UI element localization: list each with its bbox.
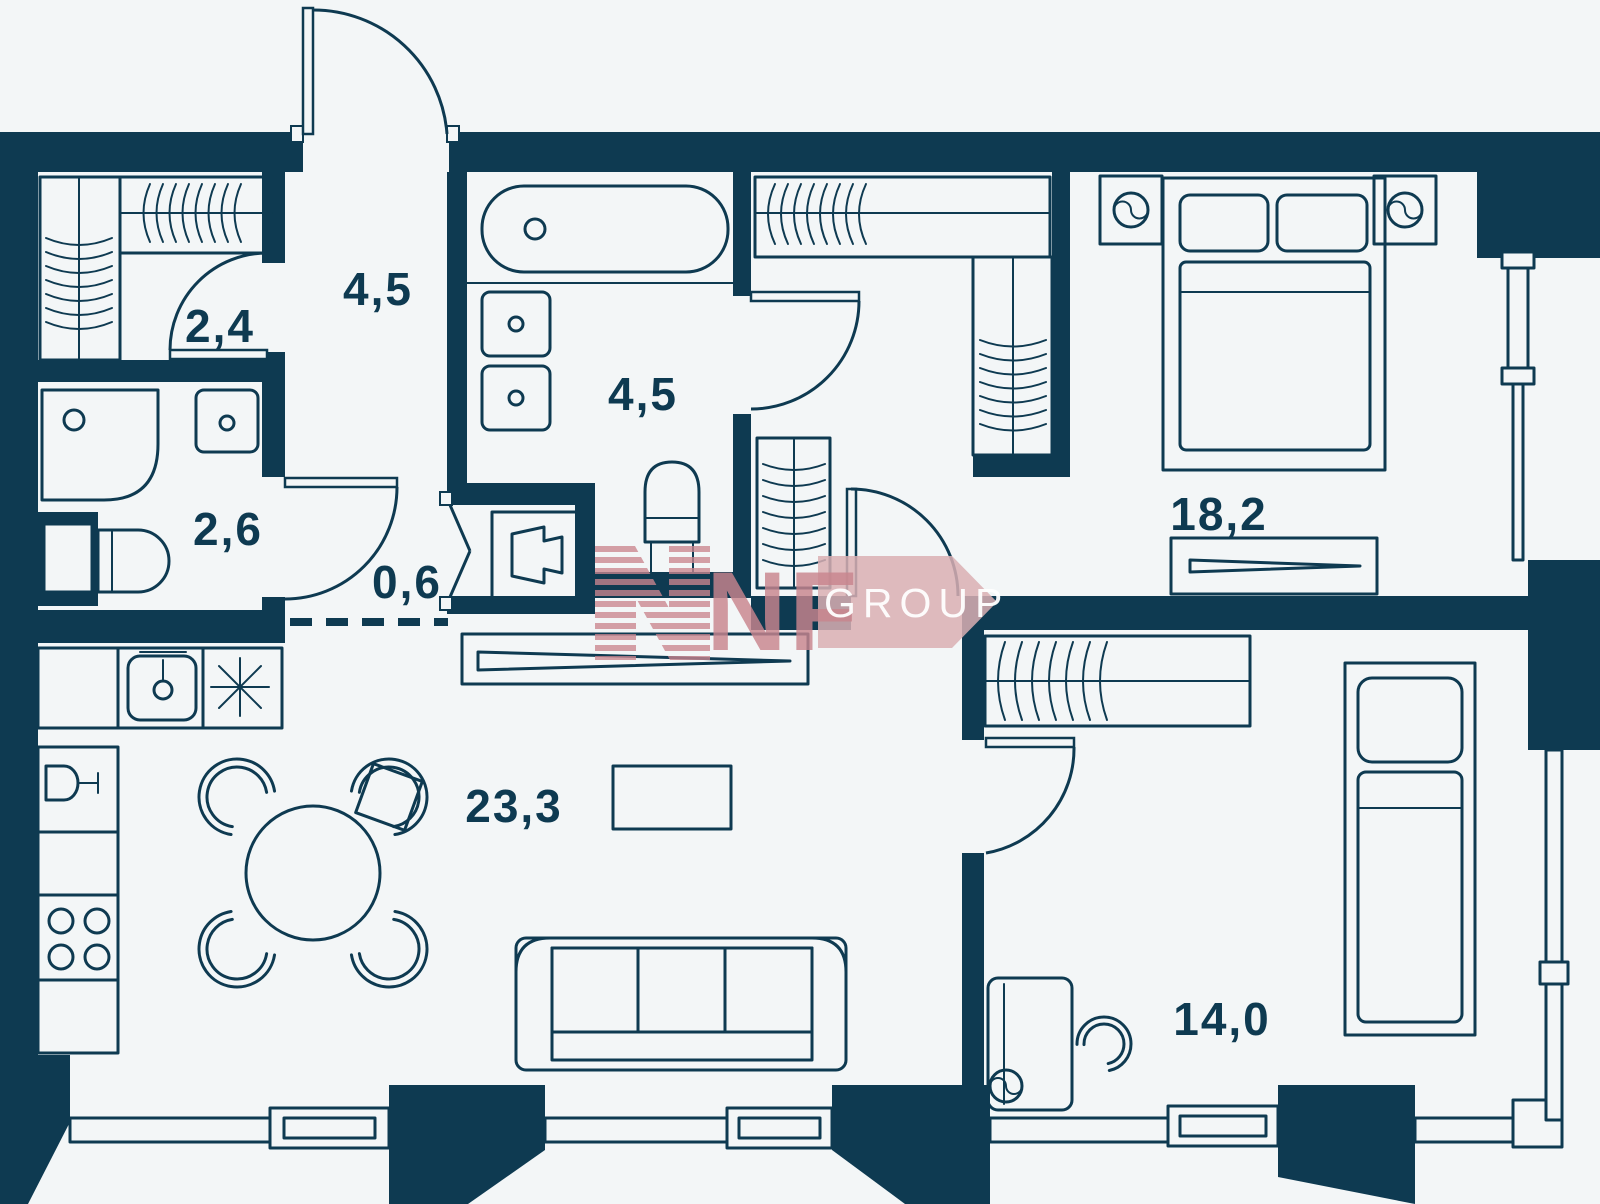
room-label-entry-hall: 4,5	[343, 263, 413, 315]
desk-chair	[1077, 1017, 1131, 1071]
room-label-shower-room: 2,6	[193, 503, 263, 555]
dining-chair	[194, 906, 281, 993]
dining-chair	[346, 754, 433, 841]
dining-set	[194, 754, 433, 993]
shower-drain-icon	[64, 410, 84, 430]
dresser	[1171, 538, 1377, 594]
toilet-icon	[645, 462, 699, 572]
bathtub	[482, 186, 728, 272]
kitchen-sink-icon	[118, 648, 203, 728]
floor-plan-page: 2,4 4,5 2,6 0,6 4,5 18,2 23,3 14,0	[0, 0, 1600, 1204]
room-label-living-kitchen: 23,3	[465, 780, 563, 832]
bathroom-fixtures	[467, 186, 733, 600]
double-bed	[1163, 178, 1385, 470]
room-label-corridor: 0,6	[372, 556, 442, 608]
bathroom-door	[751, 292, 859, 409]
kitchen-units	[38, 648, 282, 1053]
wardrobe	[985, 636, 1250, 726]
watermark-group-text: GROUP	[824, 580, 1009, 626]
pillow	[1180, 195, 1268, 251]
washbasin-icon	[196, 390, 258, 452]
washbasin-icon	[482, 292, 550, 356]
pillow	[1277, 195, 1367, 251]
floor-plan-svg: 2,4 4,5 2,6 0,6 4,5 18,2 23,3 14,0	[0, 0, 1600, 1204]
hob-icon	[203, 648, 282, 728]
room-label-closet: 2,4	[185, 300, 255, 352]
coffee-table	[613, 766, 731, 829]
shower-room-fixtures	[38, 390, 258, 606]
balcony-door-frame	[727, 1108, 832, 1148]
dining-chair	[346, 906, 433, 993]
sofa	[516, 938, 846, 1070]
stove-burners-icon	[38, 895, 118, 980]
nightstand	[1100, 176, 1162, 244]
balcony-door-frame	[1168, 1106, 1278, 1146]
room-label-bedroom-main: 18,2	[1170, 488, 1268, 540]
fridge-icon	[38, 747, 118, 832]
window-bedroom-main-right	[1502, 252, 1534, 560]
desk	[988, 978, 1072, 1110]
dining-chair	[194, 754, 281, 841]
balcony-door-frame	[270, 1108, 389, 1148]
shower-tray	[42, 390, 158, 500]
room-label-bedroom-second: 14,0	[1173, 993, 1271, 1045]
room-label-bathroom: 4,5	[608, 368, 678, 420]
pillow	[1358, 678, 1462, 762]
bedroom-second-door	[986, 738, 1074, 853]
window-bedroom-second-right	[1540, 750, 1568, 1120]
dining-table	[246, 806, 380, 940]
washbasin-icon	[482, 366, 550, 430]
toilet-icon	[38, 512, 169, 606]
niche-bifold-door	[440, 492, 470, 610]
bedroom-main-furniture	[1100, 176, 1436, 594]
entrance-door	[291, 8, 459, 142]
watermark: NF GROUP	[595, 546, 1009, 674]
washing-machine-icon	[492, 512, 578, 600]
single-bed	[1345, 663, 1475, 1035]
nightstand	[1374, 176, 1436, 244]
